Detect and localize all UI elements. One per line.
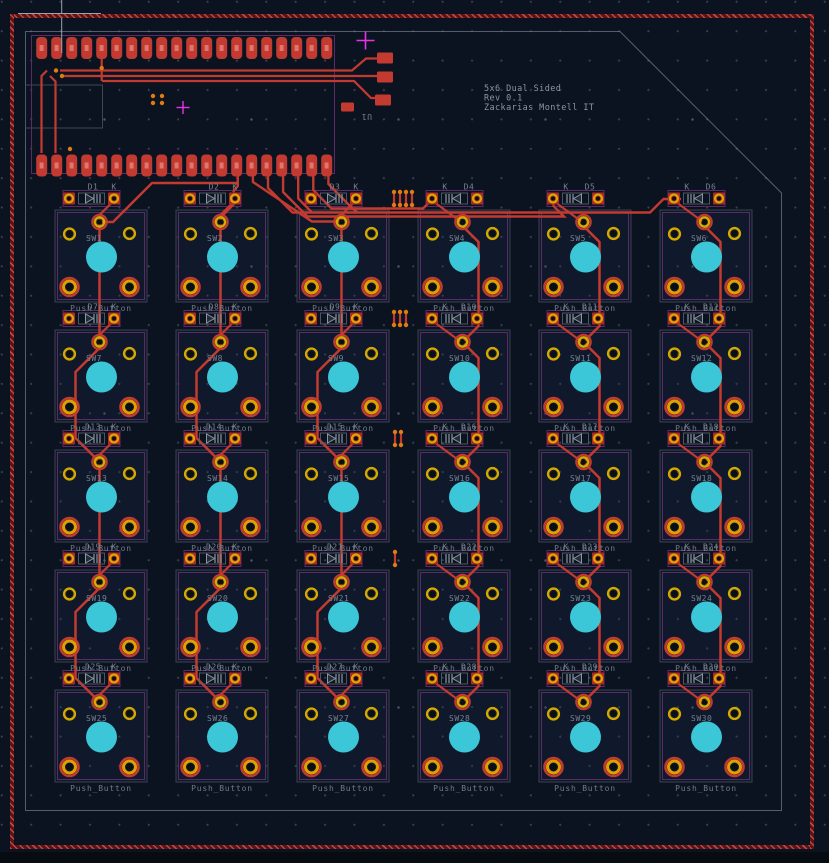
pad-number-mark: [145, 45, 149, 51]
switch-cap[interactable]: [328, 722, 359, 753]
switch-ref-label: SW23: [570, 594, 591, 603]
pad-hole: [187, 644, 194, 651]
pad-hole: [611, 231, 617, 237]
pad-hole: [248, 231, 254, 237]
via[interactable]: [160, 94, 164, 98]
pad-hole: [702, 700, 707, 705]
pad-hole: [97, 700, 102, 705]
switch-cap[interactable]: [328, 242, 359, 273]
pad-hole: [66, 764, 73, 771]
pad-hole: [188, 471, 194, 477]
diode-symbol: [86, 554, 94, 563]
switch-value-label: Push_Button: [554, 784, 616, 793]
pad-hole: [429, 284, 436, 291]
diode-ref-label: D2: [209, 183, 220, 192]
pad-hole: [717, 557, 721, 561]
pad-hole: [551, 591, 557, 597]
pad-hole: [127, 471, 133, 477]
switch-value-label: Push_Button: [433, 304, 495, 313]
diode-symbol: [695, 194, 703, 203]
pad-hole: [490, 351, 496, 357]
pad-hole: [309, 471, 315, 477]
pad-hole: [248, 351, 254, 357]
diode-ref-label: D5: [585, 183, 596, 192]
pad-hole: [368, 764, 375, 771]
pad-hole: [430, 231, 436, 237]
pad-hole: [732, 471, 738, 477]
pad-hole: [672, 317, 676, 321]
pad-hole: [233, 197, 237, 201]
pad-hole: [430, 351, 436, 357]
pad-hole: [67, 711, 73, 717]
pad-hole: [490, 711, 496, 717]
diode-symbol: [328, 554, 336, 563]
pad-hole: [671, 284, 678, 291]
switch-cap[interactable]: [691, 362, 722, 393]
via[interactable]: [404, 203, 408, 207]
pad-hole: [66, 644, 73, 651]
diode-symbol: [86, 194, 94, 203]
switch-ref-label: SW28: [449, 714, 470, 723]
pad-hole: [430, 471, 436, 477]
pad-hole: [67, 471, 73, 477]
pad-hole: [97, 580, 102, 585]
switch-value-label: Push_Button: [675, 784, 737, 793]
switch-cap[interactable]: [449, 362, 480, 393]
switch-cap[interactable]: [207, 482, 238, 513]
pad-hole: [233, 317, 237, 321]
switch-cap[interactable]: [328, 602, 359, 633]
diode-symbol: [207, 674, 215, 683]
via[interactable]: [398, 190, 402, 194]
pads-and-caps[interactable]: [61, 193, 744, 777]
pad-hole: [731, 284, 738, 291]
via[interactable]: [410, 203, 414, 207]
pad-hole: [610, 524, 617, 531]
diode-symbol: [207, 314, 215, 323]
diode-symbol: [695, 314, 703, 323]
switch-value-label: Push_Button: [675, 304, 737, 313]
via[interactable]: [392, 203, 396, 207]
connector-smd-pad[interactable]: [341, 103, 354, 112]
pad-hole: [429, 524, 436, 531]
pad-hole: [369, 231, 375, 237]
diode-symbol: [574, 194, 582, 203]
pad-hole: [112, 557, 116, 561]
copper-trace[interactable]: [42, 71, 48, 154]
pad-hole: [475, 317, 479, 321]
pad-hole: [67, 231, 73, 237]
pad-hole: [66, 404, 73, 411]
diode-symbol: [574, 314, 582, 323]
pad-hole: [248, 591, 254, 597]
pad-hole: [551, 351, 557, 357]
via[interactable]: [393, 430, 397, 434]
pad-hole: [309, 677, 313, 681]
pad-hole: [369, 471, 375, 477]
switch-ref-label: SW27: [328, 714, 349, 723]
switch-cap[interactable]: [691, 482, 722, 513]
via[interactable]: [393, 563, 397, 567]
switch-value-label: Push_Button: [70, 304, 132, 313]
pad-hole: [460, 340, 465, 345]
switch-value-label: Push_Button: [191, 424, 253, 433]
via[interactable]: [151, 94, 155, 98]
connector-smd-pad[interactable]: [377, 53, 393, 64]
pad-hole: [309, 317, 313, 321]
pad-hole: [490, 231, 496, 237]
pad-hole: [67, 351, 73, 357]
switch-ref-label: SW16: [449, 474, 470, 483]
diode-ref-label: D6: [706, 183, 717, 192]
via[interactable]: [68, 147, 72, 151]
pad-hole: [308, 524, 315, 531]
pad-hole: [127, 591, 133, 597]
switch-value-label: Push_Button: [554, 544, 616, 553]
pad-hole: [126, 284, 133, 291]
pad-hole: [188, 711, 194, 717]
pad-hole: [551, 317, 555, 321]
pad-hole: [702, 460, 707, 465]
via[interactable]: [100, 66, 104, 70]
switch-cap[interactable]: [207, 602, 238, 633]
pad-number-mark: [190, 45, 194, 51]
switch-cap[interactable]: [328, 482, 359, 513]
switch-cap[interactable]: [691, 722, 722, 753]
aux-marker-magenta: [177, 101, 190, 114]
pad-hole: [611, 591, 617, 597]
pad-hole: [248, 471, 254, 477]
pad-hole: [460, 460, 465, 465]
pad-number-mark: [250, 45, 254, 51]
copper-trace[interactable]: [60, 59, 379, 71]
pad-hole: [247, 644, 254, 651]
pad-hole: [551, 197, 555, 201]
switch-ref-label: SW1: [86, 234, 102, 243]
pad-number-mark: [100, 163, 104, 169]
diode-k-label: K: [442, 183, 447, 192]
switch-ref-label: SW7: [86, 354, 102, 363]
switch-cap[interactable]: [328, 362, 359, 393]
connector-u1[interactable]: [32, 36, 394, 177]
pad-number-mark: [280, 45, 284, 51]
diode-k-label: K: [353, 183, 358, 192]
pad-hole: [339, 220, 344, 225]
pad-hole: [430, 591, 436, 597]
switch-value-label: Push_Button: [191, 544, 253, 553]
pad-hole: [66, 524, 73, 531]
diode-ref-label: D4: [464, 183, 475, 192]
switch-ref-label: SW26: [207, 714, 228, 723]
connector-ref-label: U1: [361, 112, 372, 121]
copper-trace[interactable]: [50, 76, 56, 153]
switch-cap[interactable]: [86, 482, 117, 513]
diode-symbol: [574, 554, 582, 563]
via[interactable]: [404, 323, 408, 327]
pad-hole: [611, 711, 617, 717]
switch-value-label: Push_Button: [554, 664, 616, 673]
switch-ref-label: SW19: [86, 594, 107, 603]
switch-cap[interactable]: [86, 242, 117, 273]
pad-hole: [354, 677, 358, 681]
pad-hole: [188, 317, 192, 321]
pad-hole: [429, 404, 436, 411]
pad-hole: [309, 591, 315, 597]
pad-hole: [596, 557, 600, 561]
switch-value-label: Push_Button: [554, 304, 616, 313]
pad-hole: [430, 711, 436, 717]
pad-hole: [218, 220, 223, 225]
switch-cap[interactable]: [86, 602, 117, 633]
switch-value-label: Push_Button: [312, 664, 374, 673]
switch-ref-label: SW9: [328, 354, 344, 363]
switch-cap[interactable]: [449, 482, 480, 513]
pad-hole: [672, 197, 676, 201]
via[interactable]: [404, 310, 408, 314]
switch-ref-label: SW10: [449, 354, 470, 363]
connector-smd-pad[interactable]: [375, 95, 391, 106]
switch-cap[interactable]: [449, 242, 480, 273]
switch-cap[interactable]: [570, 722, 601, 753]
pad-hole: [308, 764, 315, 771]
pad-hole: [581, 580, 586, 585]
pad-hole: [551, 557, 555, 561]
via[interactable]: [393, 443, 397, 447]
pad-hole: [127, 351, 133, 357]
via[interactable]: [399, 430, 403, 434]
pad-hole: [247, 284, 254, 291]
switch-cap[interactable]: [207, 722, 238, 753]
pad-hole: [672, 471, 678, 477]
pad-hole: [233, 437, 237, 441]
diode-symbol: [574, 434, 582, 443]
pad-hole: [489, 284, 496, 291]
pad-number-mark: [40, 45, 44, 51]
board-edge-bottom: [10, 845, 814, 849]
pad-hole: [596, 677, 600, 681]
pad-hole: [550, 524, 557, 531]
pad-hole: [188, 591, 194, 597]
pad-hole: [611, 471, 617, 477]
diode-symbol: [453, 674, 461, 683]
pad-number-mark: [130, 45, 134, 51]
pad-hole: [551, 437, 555, 441]
pad-number-mark: [205, 163, 209, 169]
pad-hole: [339, 700, 344, 705]
pad-hole: [551, 471, 557, 477]
pcb-editor-canvas[interactable]: D1KD2KD3KD4KD5KD6KD7KD8KD9KD10KD11KD12KD…: [0, 0, 829, 863]
pad-hole: [112, 317, 116, 321]
diode-symbol: [328, 434, 336, 443]
pad-number-mark: [145, 163, 149, 169]
pad-number-mark: [70, 45, 74, 51]
switch-cap[interactable]: [449, 602, 480, 633]
pad-hole: [368, 524, 375, 531]
pad-hole: [97, 340, 102, 345]
via[interactable]: [398, 310, 402, 314]
pad-hole: [610, 764, 617, 771]
pad-hole: [126, 764, 133, 771]
pad-number-mark: [310, 45, 314, 51]
pad-hole: [187, 764, 194, 771]
switch-cap[interactable]: [691, 602, 722, 633]
pad-number-mark: [265, 163, 269, 169]
pad-hole: [550, 284, 557, 291]
switch-bodies: [55, 210, 752, 782]
switch-value-label: Push_Button: [675, 664, 737, 673]
pad-hole: [475, 557, 479, 561]
pad-hole: [490, 471, 496, 477]
overlay-markers: 5x6 Dual Sided Rev 0.1 Zackarias Montell…: [18, 0, 594, 121]
pad-hole: [188, 231, 194, 237]
switch-cap[interactable]: [86, 722, 117, 753]
diode-symbol: [207, 554, 215, 563]
pad-hole: [717, 197, 721, 201]
via[interactable]: [399, 443, 403, 447]
via[interactable]: [398, 203, 402, 207]
pad-hole: [187, 404, 194, 411]
pad-hole: [218, 460, 223, 465]
board-edge-left: [10, 14, 14, 849]
switch-cap[interactable]: [691, 242, 722, 273]
pad-hole: [581, 700, 586, 705]
page-outside-strip: [0, 852, 829, 863]
via[interactable]: [410, 190, 414, 194]
pad-hole: [671, 524, 678, 531]
pad-number-mark: [115, 163, 119, 169]
pad-hole: [550, 404, 557, 411]
diode-k-label: K: [232, 183, 237, 192]
pad-hole: [429, 764, 436, 771]
pad-hole: [112, 437, 116, 441]
pad-hole: [309, 197, 313, 201]
switch-cap[interactable]: [207, 242, 238, 273]
pad-number-mark: [280, 163, 284, 169]
pad-number-mark: [130, 163, 134, 169]
pad-hole: [188, 437, 192, 441]
switch-ref-label: SW21: [328, 594, 349, 603]
pad-hole: [489, 524, 496, 531]
pad-hole: [368, 284, 375, 291]
pad-hole: [596, 437, 600, 441]
pad-hole: [67, 677, 71, 681]
switch-ref-label: SW24: [691, 594, 712, 603]
via[interactable]: [398, 323, 402, 327]
switch-cap[interactable]: [570, 242, 601, 273]
pad-hole: [354, 437, 358, 441]
via[interactable]: [60, 74, 64, 78]
pad-number-mark: [190, 163, 194, 169]
pad-hole: [551, 711, 557, 717]
diode-k-label: K: [111, 183, 116, 192]
pad-hole: [188, 677, 192, 681]
pad-number-mark: [85, 45, 89, 51]
switch-value-label: Push_Button: [312, 304, 374, 313]
switch-cap[interactable]: [570, 602, 601, 633]
title-line-1: 5x6 Dual Sided: [484, 84, 561, 94]
pad-hole: [550, 644, 557, 651]
pad-hole: [127, 231, 133, 237]
pad-hole: [717, 677, 721, 681]
pad-hole: [672, 557, 676, 561]
pad-number-mark: [55, 163, 59, 169]
pad-hole: [218, 340, 223, 345]
switch-value-label: Push_Button: [191, 784, 253, 793]
pad-hole: [127, 711, 133, 717]
diode-symbol: [207, 434, 215, 443]
switch-ref-label: SW17: [570, 474, 591, 483]
via[interactable]: [392, 323, 396, 327]
pad-hole: [368, 644, 375, 651]
switch-cap[interactable]: [570, 482, 601, 513]
via[interactable]: [392, 190, 396, 194]
pad-hole: [672, 231, 678, 237]
pad-hole: [475, 677, 479, 681]
via[interactable]: [151, 101, 155, 105]
pad-hole: [67, 317, 71, 321]
pad-hole: [188, 351, 194, 357]
via[interactable]: [54, 68, 58, 72]
pad-hole: [67, 557, 71, 561]
pad-hole: [309, 711, 315, 717]
connector-smd-pad[interactable]: [377, 72, 393, 83]
via[interactable]: [393, 550, 397, 554]
switch-cap[interactable]: [570, 362, 601, 393]
pad-hole: [66, 284, 73, 291]
pad-hole: [339, 340, 344, 345]
switch-cap[interactable]: [207, 362, 238, 393]
switch-ref-label: SW14: [207, 474, 228, 483]
pad-hole: [126, 644, 133, 651]
board-edge-right: [810, 14, 814, 849]
pad-hole: [308, 404, 315, 411]
switch-value-label: Push_Button: [312, 784, 374, 793]
diode-symbol: [207, 194, 215, 203]
via[interactable]: [392, 310, 396, 314]
pad-hole: [187, 284, 194, 291]
switch-value-label: Push_Button: [191, 304, 253, 313]
pad-hole: [460, 700, 465, 705]
via[interactable]: [160, 101, 164, 105]
pad-hole: [233, 557, 237, 561]
pad-hole: [247, 524, 254, 531]
pad-hole: [126, 524, 133, 531]
pad-hole: [218, 700, 223, 705]
title-line-3: Zackarias Montell IT: [484, 103, 594, 113]
pad-hole: [430, 437, 434, 441]
pad-hole: [430, 197, 434, 201]
pad-hole: [112, 677, 116, 681]
pad-hole: [581, 460, 586, 465]
pad-hole: [550, 764, 557, 771]
via[interactable]: [404, 190, 408, 194]
pad-hole: [369, 351, 375, 357]
diode-symbol: [453, 314, 461, 323]
pad-hole: [309, 231, 315, 237]
switch-cap[interactable]: [449, 722, 480, 753]
switch-cap[interactable]: [86, 362, 117, 393]
pad-hole: [430, 677, 434, 681]
pad-hole: [490, 591, 496, 597]
pad-number-mark: [175, 45, 179, 51]
pad-hole: [67, 591, 73, 597]
pad-hole: [475, 437, 479, 441]
switch-value-label: Push_Button: [433, 544, 495, 553]
pad-hole: [596, 317, 600, 321]
pad-number-mark: [40, 163, 44, 169]
pad-hole: [247, 764, 254, 771]
silkscreen-labels: D1KD2KD3KD4KD5KD6KD7KD8KD9KD10KD11KD12KD…: [70, 183, 737, 794]
